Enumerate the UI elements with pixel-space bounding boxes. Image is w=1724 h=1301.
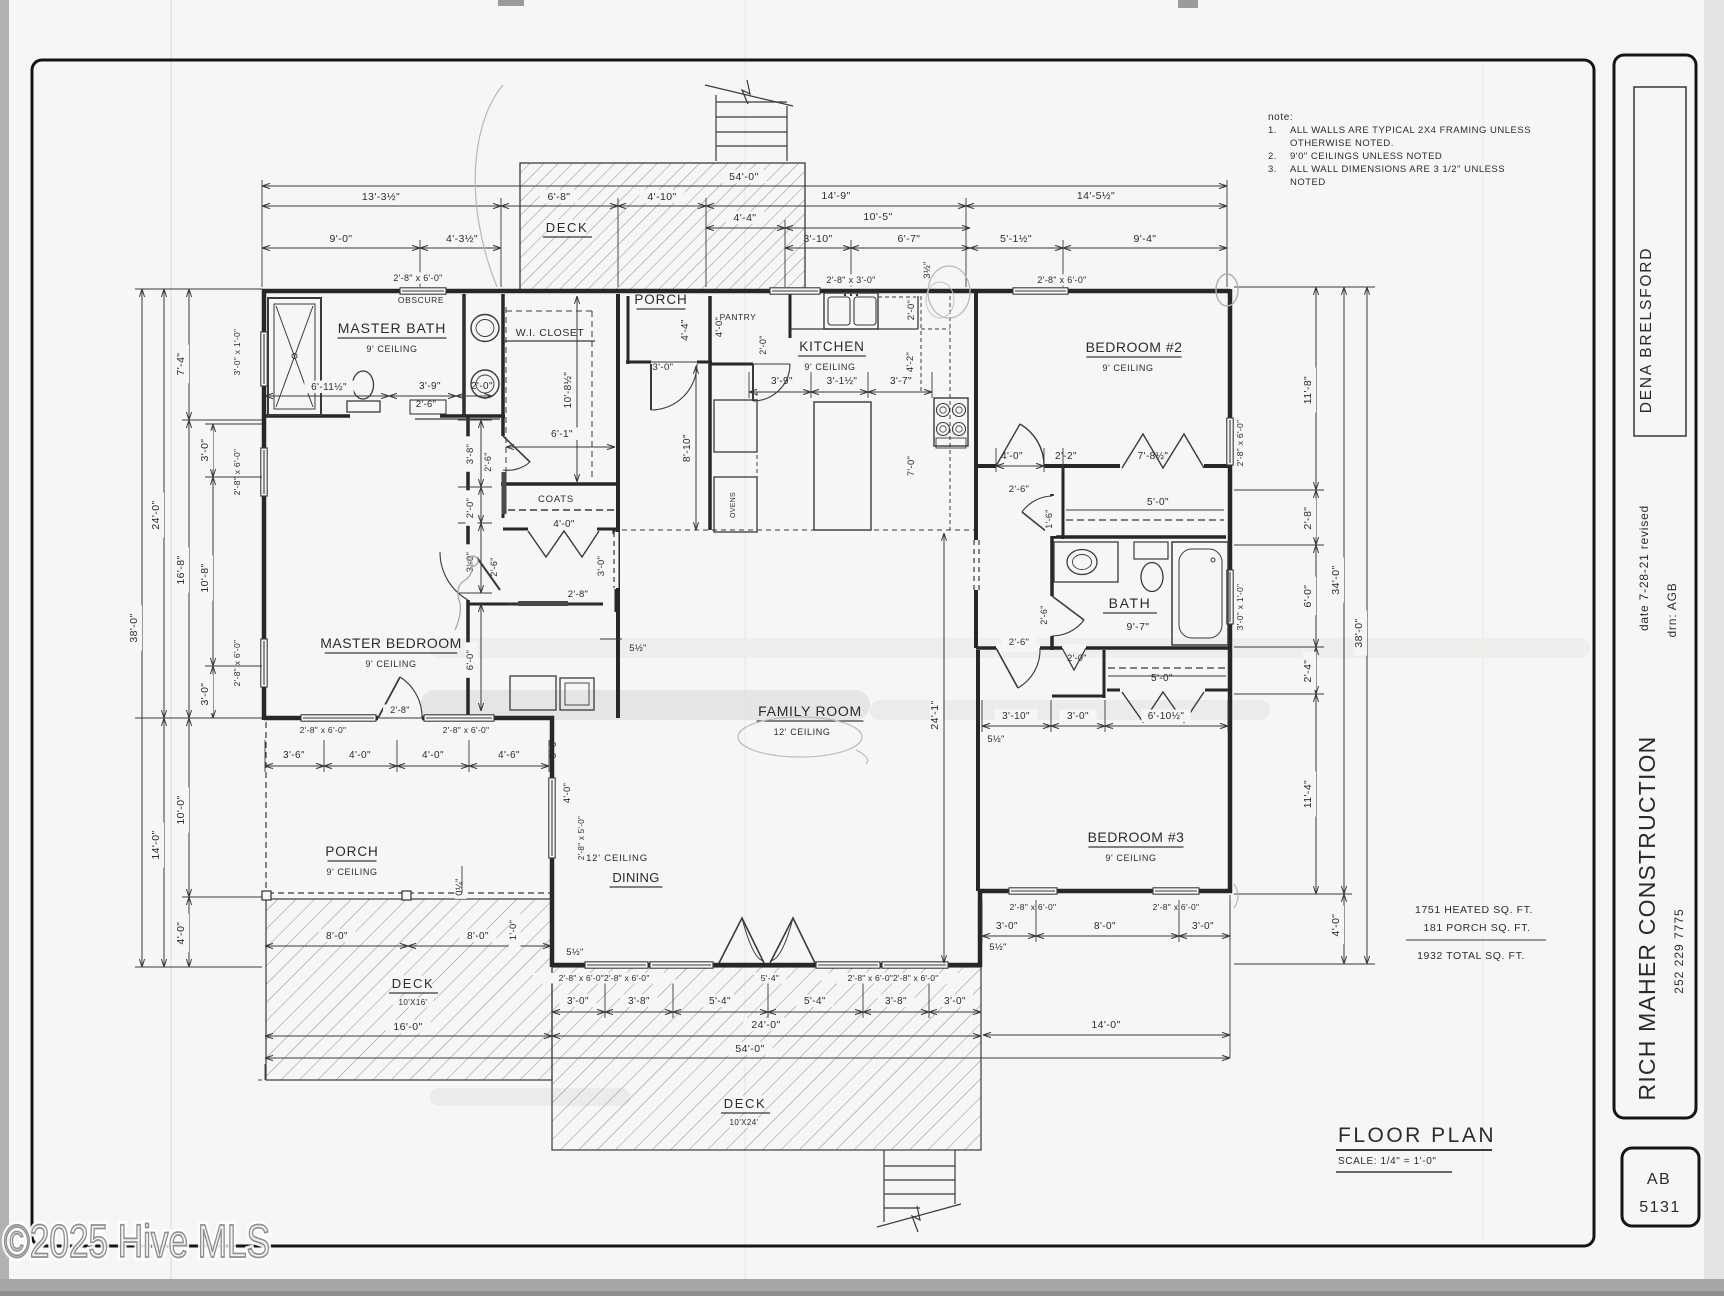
svg-text:2'-6": 2'-6": [1039, 605, 1049, 624]
svg-text:1.: 1.: [1268, 125, 1277, 136]
svg-text:14'-5½": 14'-5½": [1077, 190, 1115, 202]
svg-text:3'-7": 3'-7": [890, 376, 912, 387]
svg-text:note:: note:: [1268, 112, 1293, 123]
svg-text:10'-5": 10'-5": [863, 211, 892, 223]
svg-text:6'-1": 6'-1": [551, 429, 573, 440]
svg-text:2'-2": 2'-2": [1055, 451, 1077, 462]
svg-text:3'-0": 3'-0": [548, 738, 559, 758]
svg-text:AB: AB: [1647, 1171, 1671, 1188]
svg-text:2'-8" x 6'-0"2'-8" x 6'-0": 2'-8" x 6'-0"2'-8" x 6'-0": [559, 973, 650, 983]
svg-text:3½": 3½": [922, 261, 933, 278]
svg-text:drn: AGB: drn: AGB: [1665, 582, 1679, 637]
svg-text:BATH: BATH: [1109, 595, 1152, 611]
svg-text:34'-0": 34'-0": [1330, 565, 1342, 594]
svg-text:9' CEILING: 9' CEILING: [1105, 853, 1156, 863]
svg-text:12' CEILING: 12' CEILING: [586, 853, 648, 864]
svg-text:2'-6": 2'-6": [1009, 484, 1029, 495]
svg-text:8'-0": 8'-0": [326, 931, 348, 942]
svg-text:2'-8": 2'-8": [390, 705, 409, 715]
svg-text:181 PORCH SQ. FT.: 181 PORCH SQ. FT.: [1423, 922, 1530, 934]
svg-text:3'-0" x 1'-0": 3'-0" x 1'-0": [1235, 584, 1245, 631]
svg-text:9'-0": 9'-0": [330, 233, 353, 245]
svg-text:DECK: DECK: [392, 976, 435, 991]
svg-text:date 7-28-21 revised: date 7-28-21 revised: [1637, 505, 1651, 631]
svg-text:6'-8": 6'-8": [548, 191, 571, 203]
svg-text:5'-4": 5'-4": [761, 973, 779, 983]
svg-text:2'-8" x 6'-0"2'-8" x 6'-0": 2'-8" x 6'-0"2'-8" x 6'-0": [848, 973, 939, 983]
svg-text:4'-4": 4'-4": [734, 212, 757, 224]
svg-text:DINING: DINING: [612, 870, 659, 885]
svg-text:2'-8" x 6'-0": 2'-8" x 6'-0": [1153, 902, 1200, 912]
svg-text:5'-0": 5'-0": [1151, 673, 1173, 684]
svg-text:6'-10½": 6'-10½": [1148, 711, 1185, 722]
svg-text:3'-0": 3'-0": [567, 996, 589, 1007]
svg-text:1'-0": 1'-0": [508, 920, 519, 940]
svg-text:4'-0": 4'-0": [553, 519, 575, 530]
svg-text:7'-4": 7'-4": [175, 353, 187, 376]
svg-text:MASTER BATH: MASTER BATH: [338, 320, 446, 336]
svg-text:NOTED: NOTED: [1290, 177, 1326, 188]
svg-text:2'-0": 2'-0": [465, 498, 476, 518]
svg-text:14'-0": 14'-0": [1091, 1019, 1120, 1031]
svg-text:6'-0": 6'-0": [1302, 585, 1314, 608]
svg-text:6'-0": 6'-0": [465, 650, 476, 670]
svg-text:11'-4": 11'-4": [1302, 780, 1314, 808]
svg-text:2'-8" x 6'-0": 2'-8" x 6'-0": [1010, 902, 1057, 912]
svg-text:3'-0": 3'-0": [944, 996, 966, 1007]
svg-text:5'-0": 5'-0": [1147, 497, 1169, 508]
svg-text:DENA BRELSFORD: DENA BRELSFORD: [1638, 247, 1655, 413]
svg-text:3'-9": 3'-9": [419, 381, 441, 392]
svg-text:9' CEILING: 9' CEILING: [365, 659, 416, 669]
svg-text:BEDROOM #2: BEDROOM #2: [1086, 339, 1183, 355]
svg-text:4'-0": 4'-0": [422, 750, 444, 761]
svg-text:3'-0": 3'-0": [199, 439, 211, 462]
svg-text:3'-0": 3'-0": [1192, 921, 1214, 932]
svg-text:3'-10": 3'-10": [1002, 711, 1030, 722]
svg-text:2'-8" x 6'-0": 2'-8" x 6'-0": [232, 640, 242, 687]
svg-text:16'-8": 16'-8": [175, 555, 187, 584]
svg-text:11'-8": 11'-8": [1302, 376, 1314, 404]
svg-text:9' CEILING: 9' CEILING: [1102, 363, 1153, 373]
svg-text:©2025 Hive MLS: ©2025 Hive MLS: [4, 1215, 270, 1267]
svg-text:ALL WALL DIMENSIONS ARE 3 1/2": ALL WALL DIMENSIONS ARE 3 1/2" UNLESS: [1290, 164, 1505, 175]
svg-text:2'-8" x 6'-0": 2'-8" x 6'-0": [232, 449, 242, 496]
svg-text:3'-0" x 1'-0": 3'-0" x 1'-0": [232, 329, 242, 376]
svg-text:3'-1½": 3'-1½": [827, 376, 858, 387]
svg-text:2'-8" x 6'-0": 2'-8" x 6'-0": [1037, 275, 1086, 285]
svg-text:2'-8": 2'-8": [568, 589, 588, 600]
svg-text:5'-4": 5'-4": [804, 996, 826, 1007]
svg-text:1751 HEATED SQ. FT.: 1751 HEATED SQ. FT.: [1415, 904, 1533, 916]
svg-text:6'-11½": 6'-11½": [311, 382, 347, 393]
svg-text:2'-8" x 6'-0": 2'-8" x 6'-0": [443, 725, 490, 735]
svg-text:4'-0": 4'-0": [1001, 451, 1023, 462]
svg-text:3'-0": 3'-0": [596, 556, 607, 576]
svg-text:PORCH: PORCH: [634, 292, 687, 307]
svg-text:3'-0": 3'-0": [996, 921, 1018, 932]
svg-text:FLOOR PLAN: FLOOR PLAN: [1338, 1124, 1496, 1147]
svg-text:1932 TOTAL SQ. FT.: 1932 TOTAL SQ. FT.: [1417, 950, 1525, 962]
svg-text:KITCHEN: KITCHEN: [799, 339, 865, 354]
svg-text:3'-0": 3'-0": [199, 683, 211, 706]
svg-text:DECK: DECK: [546, 220, 589, 235]
svg-text:14'-9": 14'-9": [821, 190, 850, 202]
svg-text:2'-0": 2'-0": [471, 381, 493, 392]
svg-text:4'-0": 4'-0": [175, 922, 187, 945]
svg-text:2'-4": 2'-4": [1302, 660, 1314, 683]
svg-text:3'-8": 3'-8": [885, 996, 907, 1007]
svg-text:7'-8½": 7'-8½": [1138, 451, 1169, 462]
svg-text:4'-4": 4'-4": [680, 319, 691, 341]
svg-text:54'-0": 54'-0": [735, 1043, 764, 1055]
svg-text:3'-9": 3'-9": [771, 376, 793, 387]
svg-text:5'-4": 5'-4": [709, 996, 731, 1007]
svg-text:4'-10": 4'-10": [647, 191, 676, 203]
svg-text:3'-0": 3'-0": [465, 552, 476, 572]
svg-text:2'-8" x 6'-0": 2'-8" x 6'-0": [300, 725, 347, 735]
svg-text:38'-0": 38'-0": [1353, 618, 1365, 647]
svg-text:8'-0": 8'-0": [1094, 921, 1116, 932]
svg-text:6'-7": 6'-7": [898, 233, 921, 245]
svg-text:2'-6": 2'-6": [416, 399, 436, 410]
svg-text:OBSCURE: OBSCURE: [398, 295, 444, 305]
svg-text:2'-8" x 6'-0": 2'-8" x 6'-0": [393, 273, 442, 283]
svg-text:4'-0": 4'-0": [562, 783, 573, 803]
svg-text:38'-0": 38'-0": [128, 613, 140, 642]
svg-text:PORCH: PORCH: [325, 844, 378, 859]
svg-text:10'X16': 10'X16': [399, 998, 428, 1007]
svg-text:RICH MAHER CONSTRUCTION: RICH MAHER CONSTRUCTION: [1634, 736, 1660, 1101]
svg-text:9' CEILING: 9' CEILING: [366, 344, 417, 354]
svg-text:3'-10": 3'-10": [803, 233, 832, 245]
svg-text:2'-6": 2'-6": [489, 557, 499, 576]
svg-text:COATS: COATS: [538, 494, 574, 505]
svg-text:13'-3½": 13'-3½": [362, 191, 400, 203]
svg-text:4'-0": 4'-0": [349, 750, 371, 761]
svg-text:16'-0": 16'-0": [393, 1021, 422, 1033]
svg-text:OTHERWISE NOTED.: OTHERWISE NOTED.: [1290, 138, 1394, 149]
svg-text:FAMILY ROOM: FAMILY ROOM: [758, 703, 862, 719]
svg-text:9' CEILING: 9' CEILING: [326, 867, 377, 877]
svg-text:2'-8" x 6'-0": 2'-8" x 6'-0": [1235, 420, 1245, 467]
svg-text:DECK: DECK: [724, 1096, 767, 1111]
svg-text:2'-8" x 5'-0": 2'-8" x 5'-0": [577, 816, 586, 860]
svg-text:4'-0": 4'-0": [714, 317, 725, 337]
svg-text:4'-3½": 4'-3½": [446, 233, 478, 245]
svg-text:5'-1½": 5'-1½": [1000, 233, 1032, 245]
svg-text:5½": 5½": [987, 734, 1004, 745]
svg-text:2'-0": 2'-0": [758, 335, 768, 354]
svg-text:8'-0": 8'-0": [467, 931, 489, 942]
svg-text:9'-7": 9'-7": [1127, 621, 1150, 633]
svg-text:8'-10": 8'-10": [682, 434, 693, 462]
svg-text:5½": 5½": [629, 643, 646, 654]
svg-text:MASTER BEDROOM: MASTER BEDROOM: [320, 635, 462, 651]
svg-text:5½": 5½": [566, 947, 583, 958]
svg-text:9' CEILING: 9' CEILING: [804, 362, 855, 372]
svg-text:2'-8" x 3'-0": 2'-8" x 3'-0": [826, 275, 875, 285]
svg-text:0¼": 0¼": [454, 878, 465, 895]
svg-text:4'-0": 4'-0": [1330, 914, 1342, 937]
svg-text:OVENS: OVENS: [730, 492, 737, 518]
svg-text:10'X24': 10'X24': [730, 1118, 759, 1127]
svg-text:3'-6": 3'-6": [283, 750, 305, 761]
svg-text:12' CEILING: 12' CEILING: [774, 727, 831, 737]
svg-text:ALL WALLS ARE TYPICAL 2X4 FRAM: ALL WALLS ARE TYPICAL 2X4 FRAMING UNLESS: [1290, 125, 1531, 136]
svg-text:54'-0": 54'-0": [729, 171, 759, 183]
svg-text:PANTRY: PANTRY: [720, 312, 757, 322]
svg-text:2.: 2.: [1268, 151, 1277, 162]
svg-text:2'-8": 2'-8": [1302, 507, 1314, 530]
svg-text:24'-1": 24'-1": [929, 700, 941, 729]
svg-text:5½": 5½": [989, 942, 1006, 953]
svg-text:W.I. CLOSET: W.I. CLOSET: [516, 327, 585, 339]
svg-text:4'-2": 4'-2": [905, 352, 916, 372]
svg-text:2'-0": 2'-0": [1067, 653, 1086, 663]
svg-text:3'-8": 3'-8": [628, 996, 650, 1007]
svg-text:3'-0": 3'-0": [1067, 711, 1089, 722]
svg-text:14'-0": 14'-0": [150, 830, 162, 859]
svg-text:10'-8½": 10'-8½": [563, 372, 574, 409]
svg-text:24'-0": 24'-0": [751, 1019, 780, 1031]
svg-text:252 229 7775: 252 229 7775: [1672, 908, 1686, 993]
svg-text:2'-6": 2'-6": [1009, 637, 1029, 648]
svg-text:3'-0": 3'-0": [653, 362, 674, 373]
svg-text:9'-4": 9'-4": [1134, 233, 1157, 245]
svg-text:5131: 5131: [1639, 1199, 1681, 1216]
svg-text:4'-6": 4'-6": [498, 750, 520, 761]
svg-text:BEDROOM #3: BEDROOM #3: [1088, 829, 1185, 845]
svg-text:3'-8": 3'-8": [465, 444, 476, 464]
svg-text:1'-6": 1'-6": [1044, 509, 1054, 528]
svg-text:2'-0": 2'-0": [906, 300, 917, 320]
svg-text:3.: 3.: [1268, 164, 1277, 175]
svg-text:7'-0": 7'-0": [906, 456, 917, 476]
svg-text:2'-6": 2'-6": [483, 452, 493, 471]
svg-text:10'-8": 10'-8": [199, 563, 211, 592]
svg-text:24'-0": 24'-0": [150, 500, 162, 529]
svg-text:SCALE: 1/4" = 1'-0": SCALE: 1/4" = 1'-0": [1338, 1156, 1437, 1167]
svg-text:10'-0": 10'-0": [175, 795, 187, 824]
svg-text:9'0" CEILINGS UNLESS NOTED: 9'0" CEILINGS UNLESS NOTED: [1290, 151, 1442, 162]
